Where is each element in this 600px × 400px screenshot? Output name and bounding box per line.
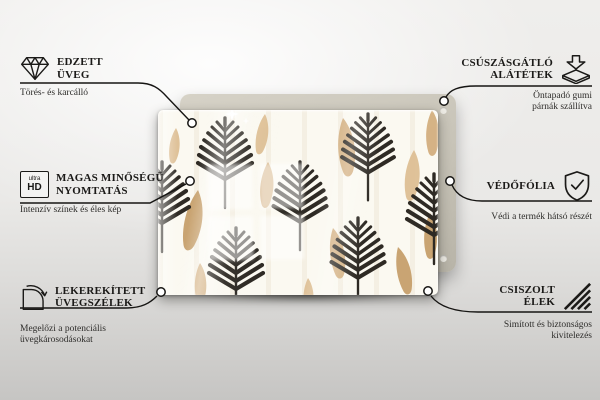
callout-subtitle: Intenzív színek és éles kép [20, 205, 172, 216]
callout-print-quality: ultra HD MAGAS MINŐSÉGŰ NYOMTATÁS Intenz… [20, 171, 172, 216]
callout-subtitle: Törés- és karcálló [20, 88, 160, 99]
callout-title: LEKEREKÍTETT ÜVEGSZÉLEK [55, 285, 145, 310]
product-glass-board [158, 110, 438, 295]
diamond-icon [20, 55, 50, 82]
rubber-pad-bottom [440, 255, 447, 262]
shield-check-icon [562, 170, 592, 202]
callout-subtitle: Megelőzi a potenciális üvegkárosodásokat [20, 324, 172, 346]
callout-subtitle: Védi a termék hátsó részét [414, 212, 592, 223]
window-reflection [207, 163, 305, 261]
ultra-hd-icon: ultra HD [20, 171, 49, 198]
callout-title: EDZETT ÜVEG [57, 56, 103, 81]
callout-rounded-edges: LEKEREKÍTETT ÜVEGSZÉLEK Megelőzi a poten… [20, 283, 172, 346]
callout-title: CSÚSZÁSGÁTLÓ ALÁTÉTEK [461, 57, 553, 82]
callout-subtitle: Öntapadó gumi párnák szállítva [414, 91, 592, 113]
callout-tempered-glass: EDZETT ÜVEG Törés- és karcálló [20, 55, 160, 99]
product-infographic: EDZETT ÜVEG Törés- és karcálló ultra HD … [0, 0, 600, 400]
callout-polished-edges: CSISZOLT ÉLEK Simított és biztonságos ki… [414, 281, 592, 342]
rounded-corner-icon [20, 283, 48, 311]
callout-title: VÉDŐFÓLIA [487, 180, 555, 193]
callout-title: CSISZOLT ÉLEK [499, 284, 555, 309]
callout-title: MAGAS MINŐSÉGŰ NYOMTATÁS [56, 172, 164, 197]
adhesive-pads-icon [560, 54, 592, 84]
callout-subtitle: Simított és biztonságos kivitelezés [414, 320, 592, 342]
callout-protective-film: VÉDŐFÓLIA Védi a termék hátsó részét [414, 170, 592, 223]
sparkle-icon [225, 110, 250, 125]
callout-anti-slip-pads: CSÚSZÁSGÁTLÓ ALÁTÉTEK Öntapadó gumi párn… [414, 54, 592, 113]
polished-edges-icon [562, 281, 592, 311]
